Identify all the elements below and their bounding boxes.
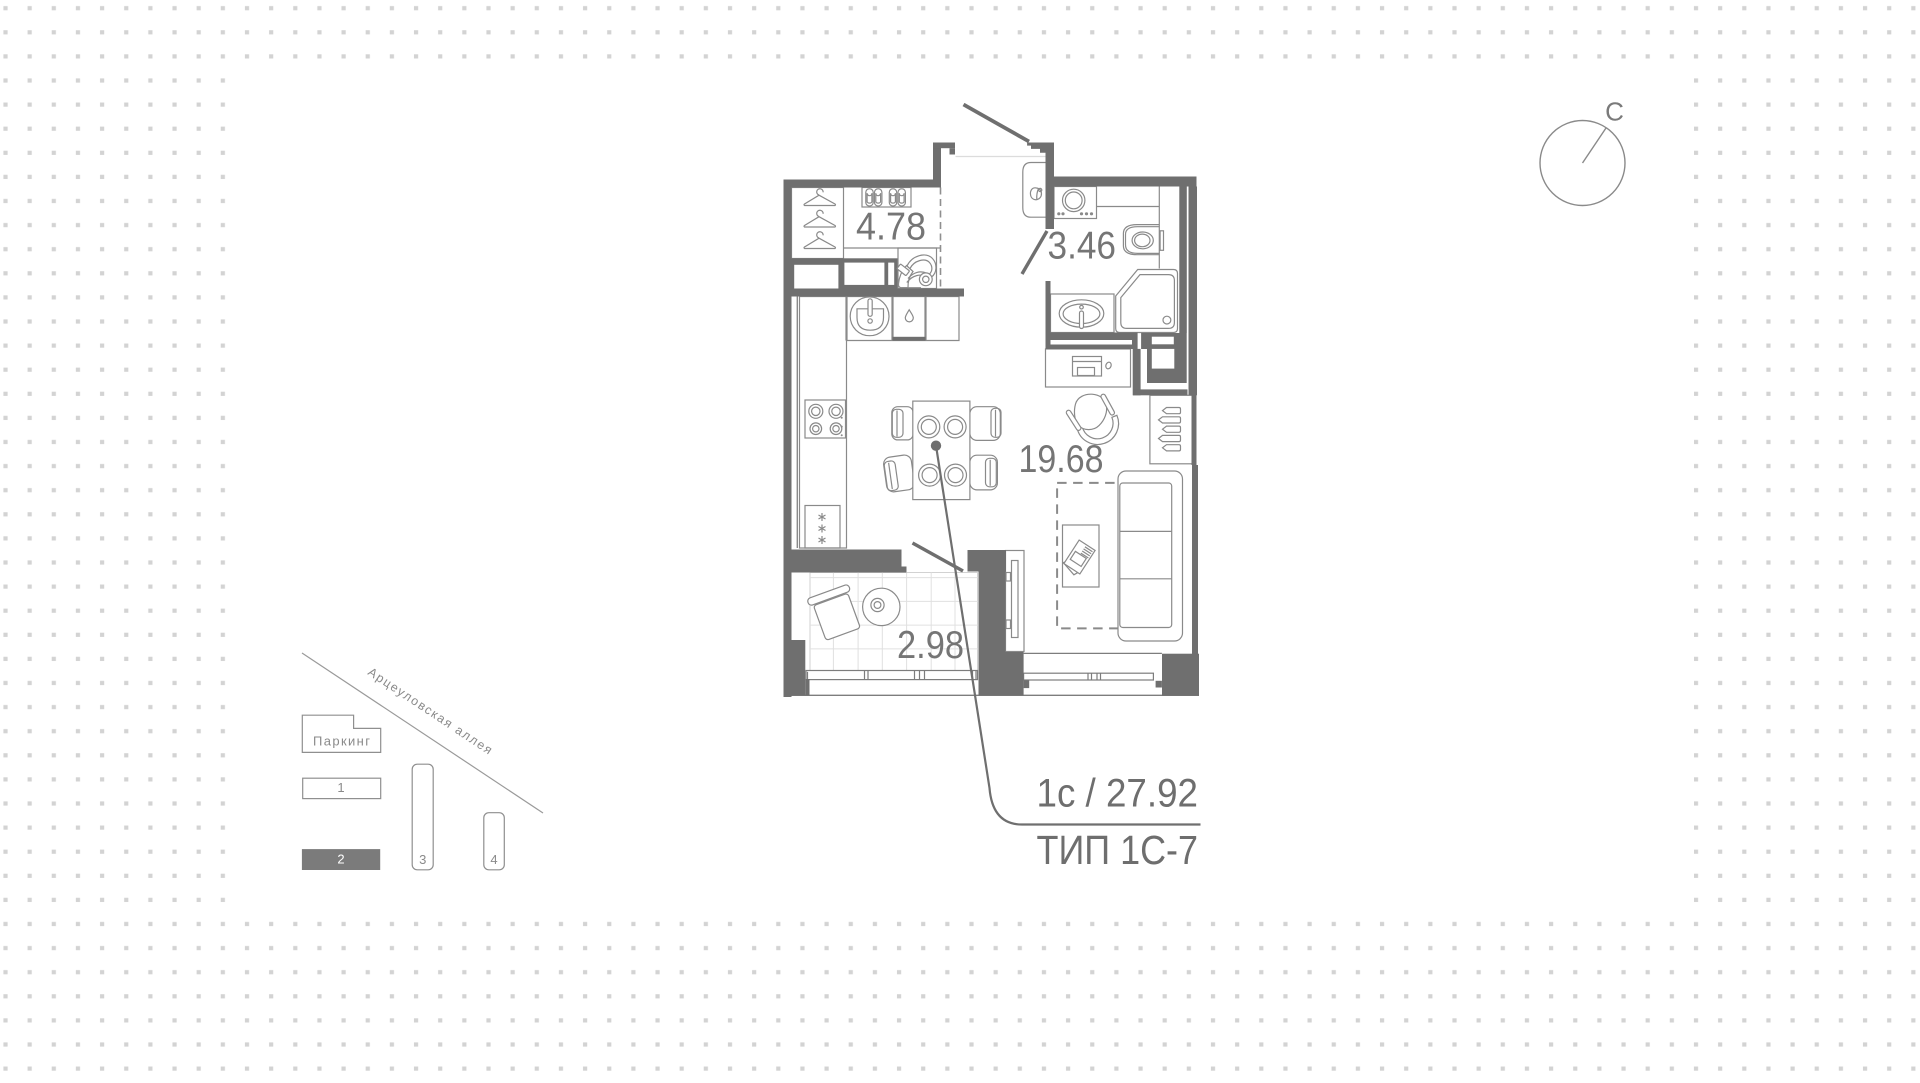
svg-text:2.98: 2.98 xyxy=(897,624,964,667)
svg-text:2: 2 xyxy=(337,852,344,867)
svg-text:1с / 27.92: 1с / 27.92 xyxy=(1037,772,1199,816)
svg-text:3.46: 3.46 xyxy=(1048,225,1117,268)
svg-text:С: С xyxy=(1605,97,1624,127)
svg-text:ТИП 1С-7: ТИП 1С-7 xyxy=(1037,827,1199,873)
svg-text:4.78: 4.78 xyxy=(856,205,926,248)
svg-text:19.68: 19.68 xyxy=(1019,438,1104,481)
svg-text:3: 3 xyxy=(419,852,426,867)
svg-text:Паркинг: Паркинг xyxy=(313,733,370,748)
svg-text:1: 1 xyxy=(337,780,344,795)
svg-text:4: 4 xyxy=(490,852,497,867)
